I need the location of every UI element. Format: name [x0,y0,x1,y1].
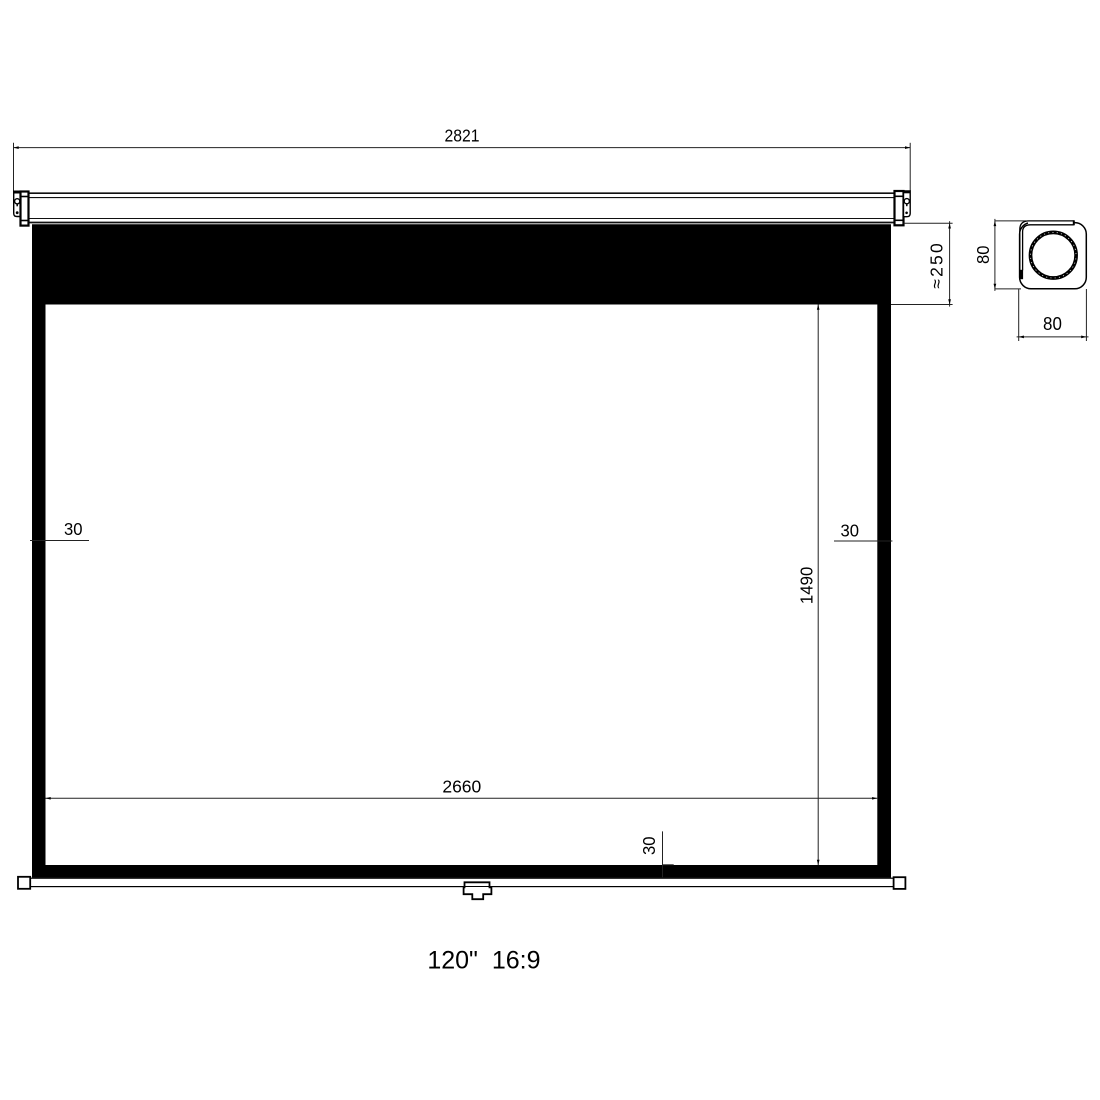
svg-text:120" 16:9: 120" 16:9 [427,946,540,974]
svg-text:30: 30 [64,520,82,539]
svg-text:1490: 1490 [796,567,816,604]
svg-text:30: 30 [639,836,658,854]
svg-text:80: 80 [1043,313,1062,334]
svg-text:30: 30 [841,521,859,540]
svg-text:2821: 2821 [445,126,480,146]
svg-text:2660: 2660 [442,777,481,797]
svg-text:80: 80 [972,246,993,264]
svg-text:≈250: ≈250 [927,241,947,289]
